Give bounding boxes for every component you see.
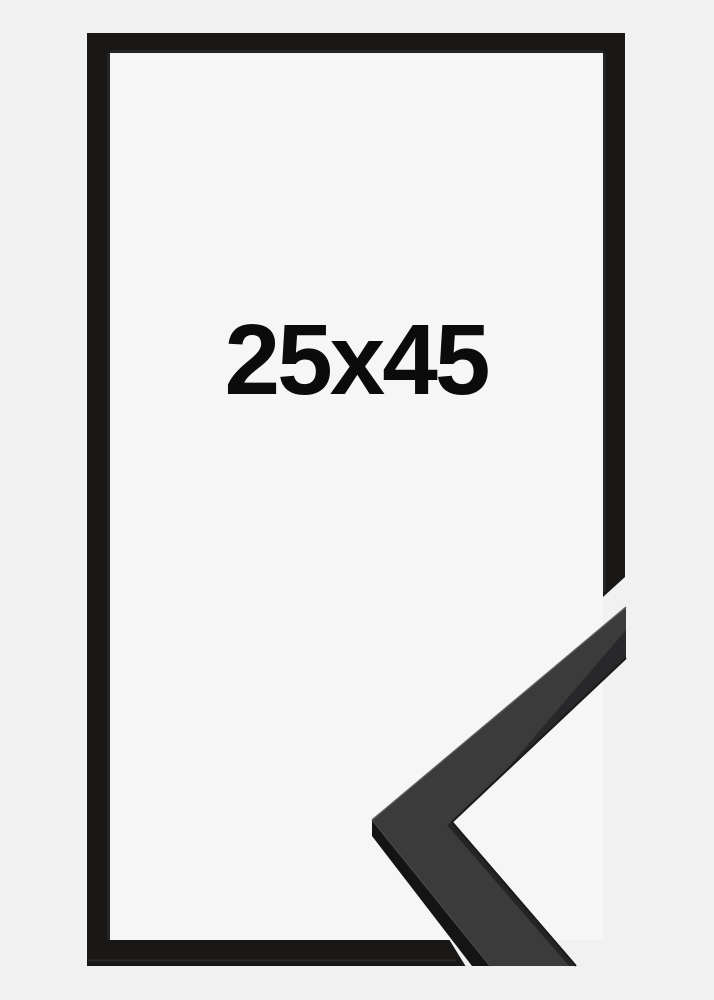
frame-product-image: 25x45 — [0, 0, 714, 1000]
frame-interior — [110, 53, 603, 940]
product-photo-canvas: 25x45 — [0, 0, 714, 1000]
size-label: 25x45 — [224, 304, 487, 416]
